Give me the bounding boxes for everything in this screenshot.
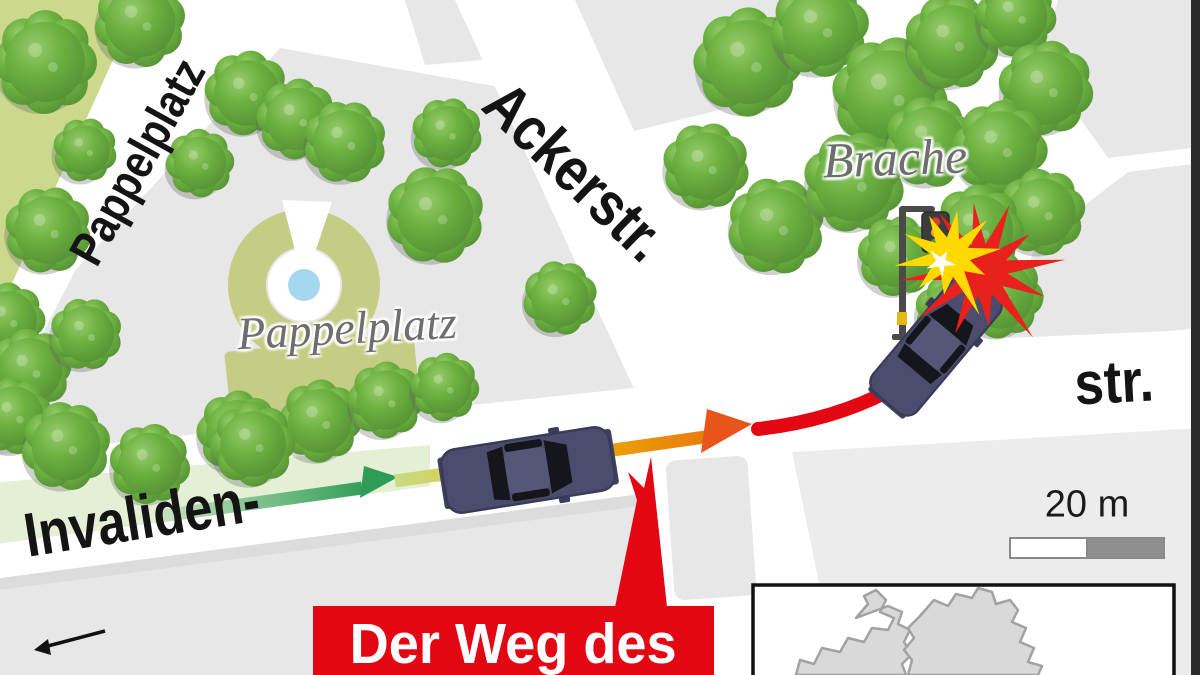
callout-banner: Der Weg des bbox=[313, 606, 714, 675]
city-block bbox=[665, 455, 757, 600]
accident-map: Pappelplatz Ackerstr. Invaliden- str. Pa… bbox=[0, 0, 1200, 675]
inset-map bbox=[753, 585, 1174, 675]
scale-bar bbox=[1010, 538, 1164, 558]
pond bbox=[288, 269, 320, 301]
image-edge-strip bbox=[1191, 0, 1200, 675]
place-label-brache: Brache bbox=[822, 126, 968, 189]
callout-text: Der Weg des bbox=[350, 611, 677, 675]
scale-label: 20 m bbox=[1045, 484, 1129, 527]
street-label-str-suffix: str. bbox=[1073, 345, 1156, 418]
